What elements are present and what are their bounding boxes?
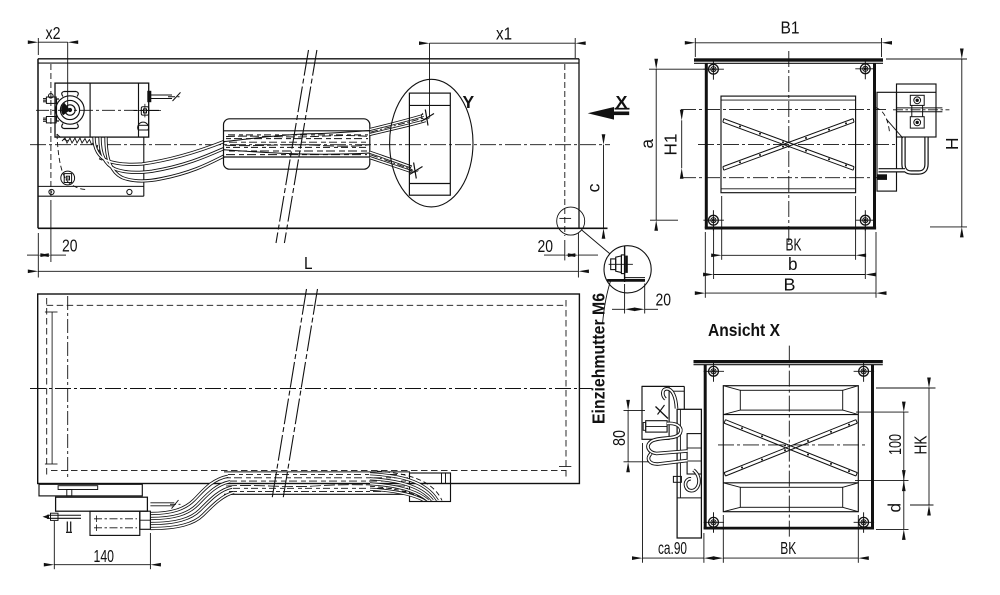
- svg-text:80: 80: [609, 430, 629, 446]
- svg-text:c: c: [584, 183, 604, 192]
- svg-text:20: 20: [62, 236, 78, 256]
- svg-text:BK: BK: [786, 234, 802, 254]
- svg-text:Y: Y: [463, 92, 475, 112]
- svg-text:B1: B1: [781, 18, 800, 38]
- svg-text:x1: x1: [496, 23, 512, 43]
- svg-text:b: b: [788, 254, 798, 274]
- svg-text:x2: x2: [46, 23, 61, 43]
- svg-text:20: 20: [538, 236, 554, 256]
- svg-text:L: L: [304, 253, 313, 273]
- svg-text:H1: H1: [661, 134, 681, 156]
- svg-text:H: H: [942, 138, 962, 151]
- svg-text:140: 140: [94, 546, 115, 566]
- svg-text:HK: HK: [911, 435, 931, 454]
- svg-text:Ansicht X: Ansicht X: [708, 320, 780, 340]
- svg-text:a: a: [637, 139, 657, 149]
- svg-text:Einziehmutter M6: Einziehmutter M6: [589, 293, 609, 424]
- svg-text:100: 100: [885, 434, 905, 455]
- svg-text:ca.90: ca.90: [658, 538, 687, 558]
- svg-text:BK: BK: [780, 538, 796, 558]
- svg-text:B: B: [784, 274, 796, 294]
- svg-text:X: X: [616, 92, 628, 112]
- svg-text:20: 20: [656, 290, 672, 310]
- svg-text:d: d: [885, 503, 905, 513]
